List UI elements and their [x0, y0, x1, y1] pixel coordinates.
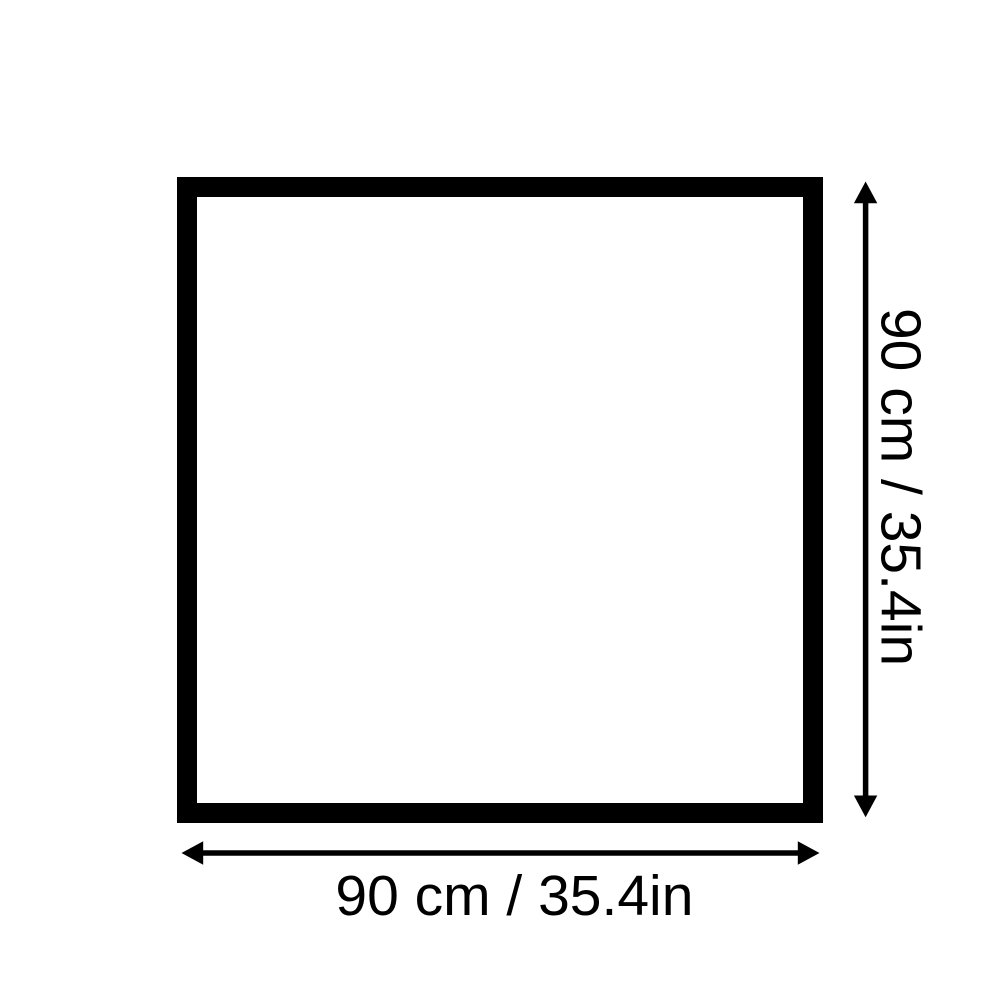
- svg-text:90 cm / 35.4in: 90 cm / 35.4in: [869, 308, 933, 666]
- svg-text:90 cm / 35.4in: 90 cm / 35.4in: [335, 864, 693, 928]
